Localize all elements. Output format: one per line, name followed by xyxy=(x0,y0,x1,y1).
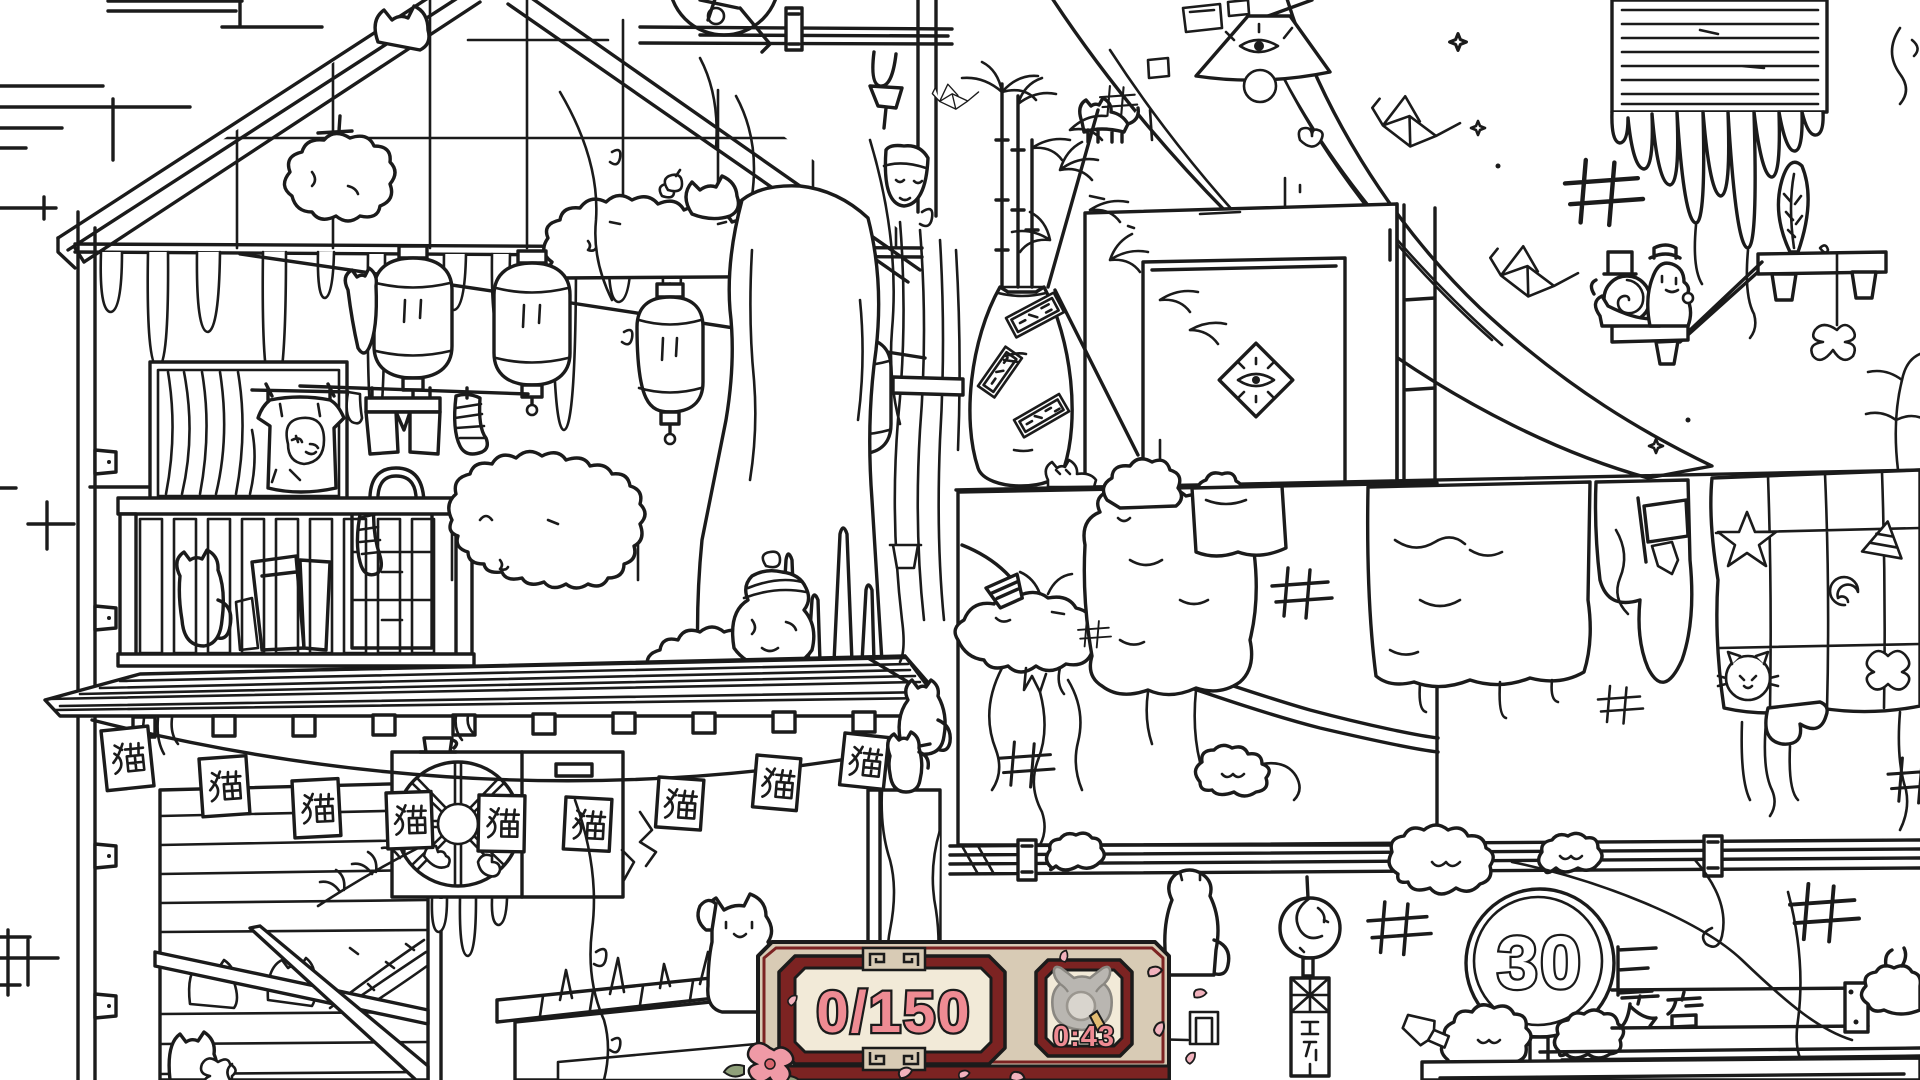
svg-text:0/150: 0/150 xyxy=(816,980,971,1045)
svg-text:0:43: 0:43 xyxy=(1053,1021,1115,1053)
svg-text:30: 30 xyxy=(1497,921,1583,1004)
